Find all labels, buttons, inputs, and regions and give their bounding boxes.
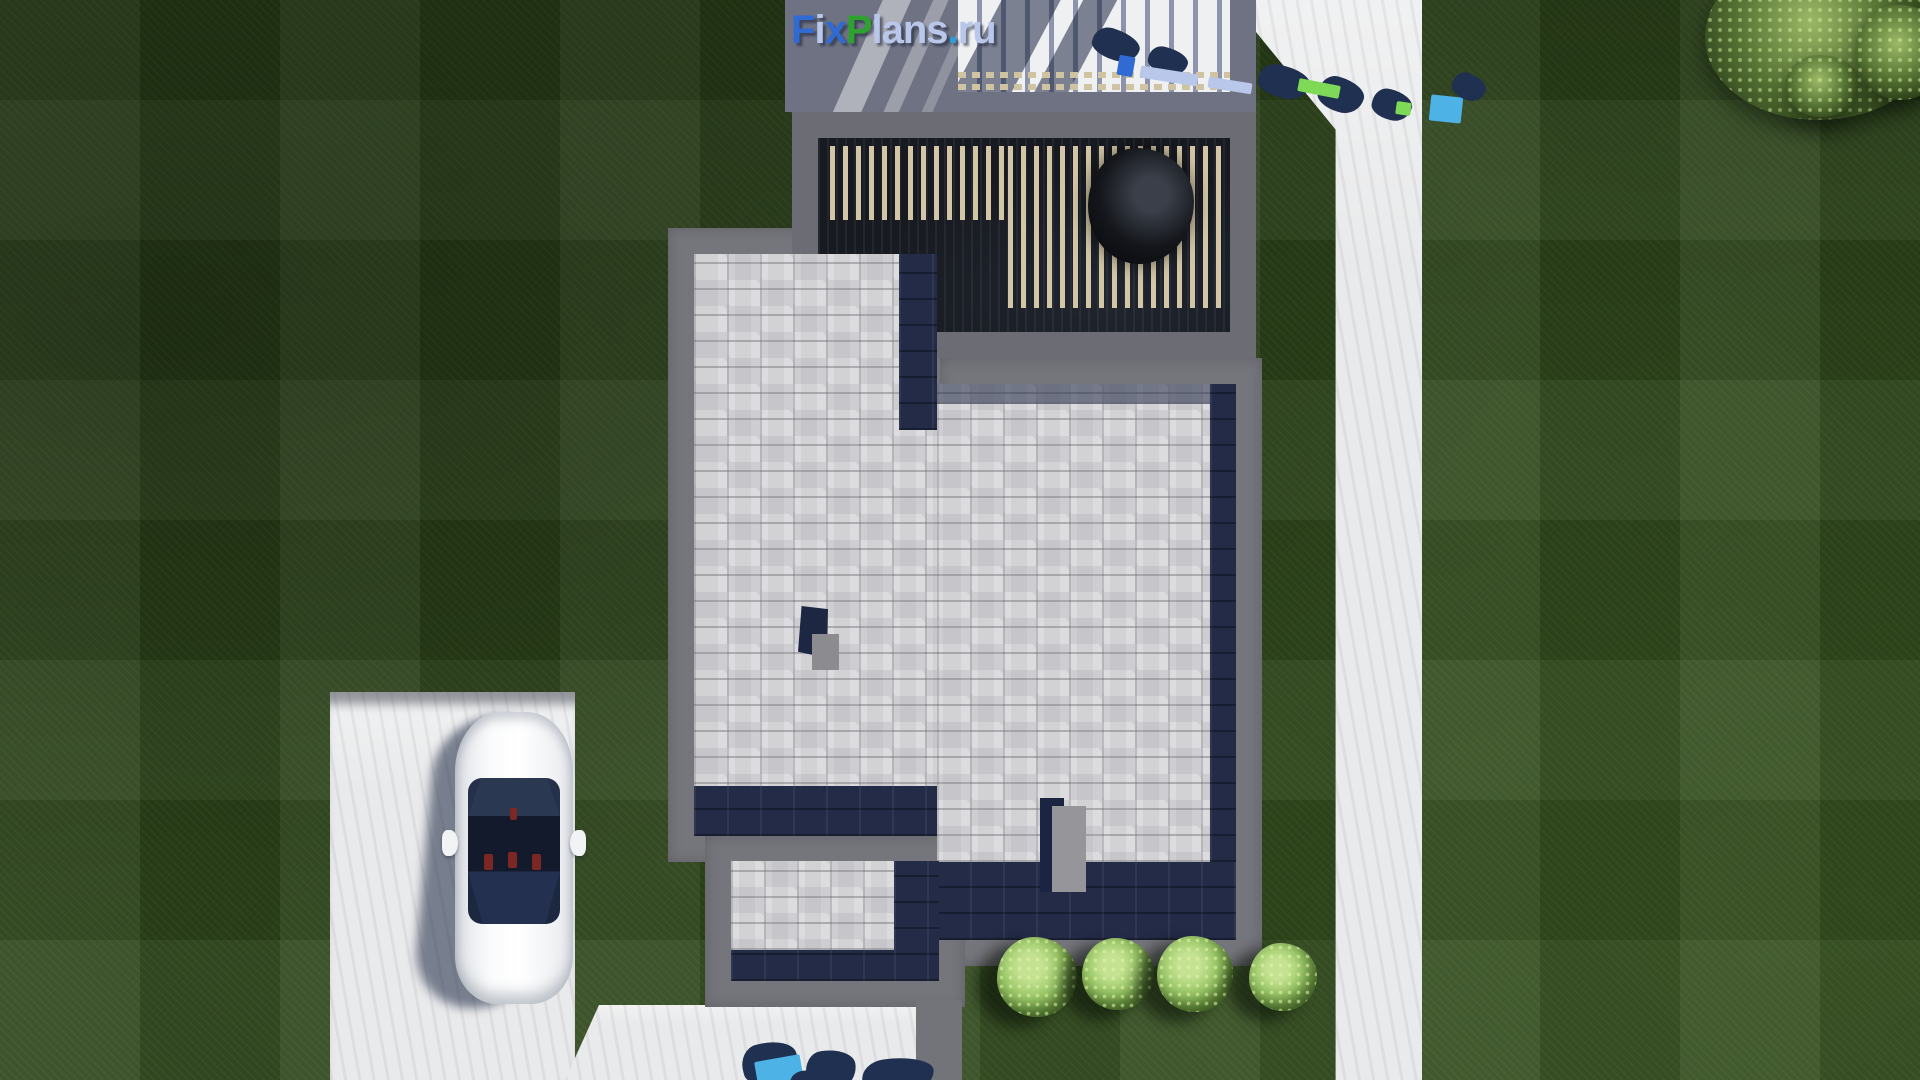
bush <box>1249 943 1317 1011</box>
roof-shadow-band <box>731 950 894 981</box>
car-mirror-left <box>442 830 458 856</box>
car-seat <box>532 854 541 870</box>
roof-shadow-band <box>937 384 1236 404</box>
logo-letter: P <box>846 8 872 52</box>
bush <box>997 937 1077 1017</box>
car-glass-roof <box>468 778 560 924</box>
roof-shadow-band <box>894 861 939 981</box>
watermark-blue-chip <box>1116 55 1135 77</box>
pergola-slats <box>830 146 1008 220</box>
roof-shadow-band <box>937 862 1236 940</box>
bush <box>1082 938 1154 1010</box>
logo-letter: F <box>791 8 814 52</box>
roof-shadow-band <box>899 254 937 430</box>
roof-shadow-band <box>1210 384 1236 940</box>
car-seat <box>510 808 517 820</box>
watermark-green-chip <box>1395 101 1412 116</box>
logo-letter: x <box>825 8 846 52</box>
roof-shadow-band <box>694 786 937 836</box>
car-seat <box>508 852 517 868</box>
logo-letter: i <box>814 8 824 52</box>
car-mirror-right <box>570 830 586 856</box>
shingle-roof-right <box>937 384 1236 940</box>
shingle-roof-porch <box>731 861 894 950</box>
logo-letter: ru <box>958 8 996 52</box>
chimney-cap <box>1052 806 1086 892</box>
logo-letter: . <box>948 8 958 52</box>
logo-letter: lans <box>872 8 948 52</box>
chimney-cap <box>812 634 839 670</box>
white-car <box>455 712 573 1004</box>
fixplans-watermark-logo: FixPlans.ru <box>791 8 996 53</box>
car-seat <box>484 854 493 870</box>
site-plan-render: FixPlans.ru <box>0 0 1920 1080</box>
chimney-small <box>798 606 840 670</box>
chimney-tall <box>1040 798 1086 892</box>
bush <box>1157 936 1233 1012</box>
watermark-cyan-chip <box>1429 94 1464 123</box>
